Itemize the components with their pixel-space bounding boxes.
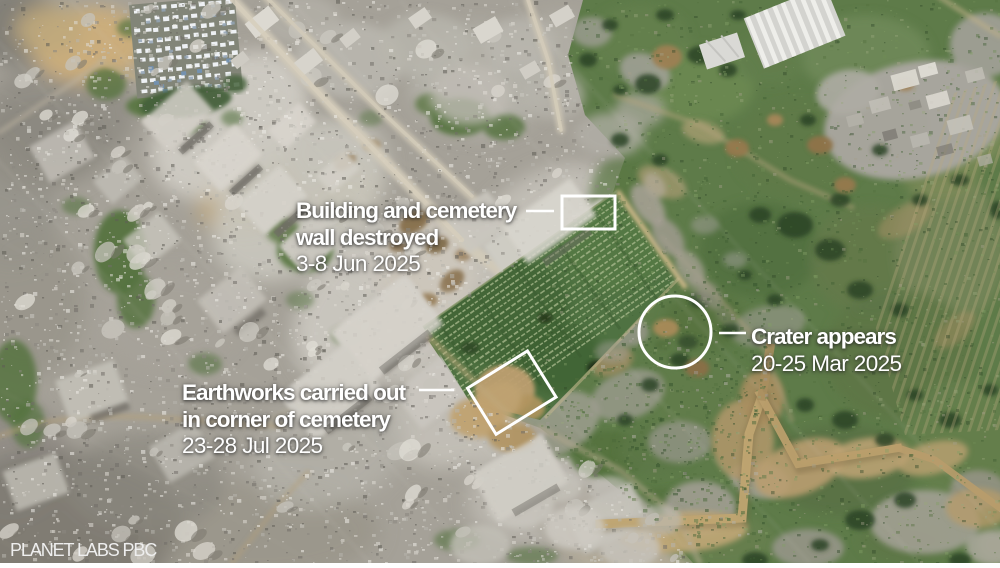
svg-text:Crater appears: Crater appears <box>751 324 896 349</box>
svg-text:in corner of cemetery: in corner of cemetery <box>182 407 391 432</box>
svg-text:PLANET LABS PBC: PLANET LABS PBC <box>10 540 157 560</box>
svg-text:3-8 Jun 2025: 3-8 Jun 2025 <box>296 251 420 276</box>
svg-text:20-25 Mar 2025: 20-25 Mar 2025 <box>751 351 902 376</box>
svg-text:wall destroyed: wall destroyed <box>295 225 439 250</box>
svg-text:Earthworks carried out: Earthworks carried out <box>182 380 407 405</box>
svg-text:Building and cemetery: Building and cemetery <box>296 198 518 223</box>
svg-text:23-28 Jul 2025: 23-28 Jul 2025 <box>182 433 323 458</box>
